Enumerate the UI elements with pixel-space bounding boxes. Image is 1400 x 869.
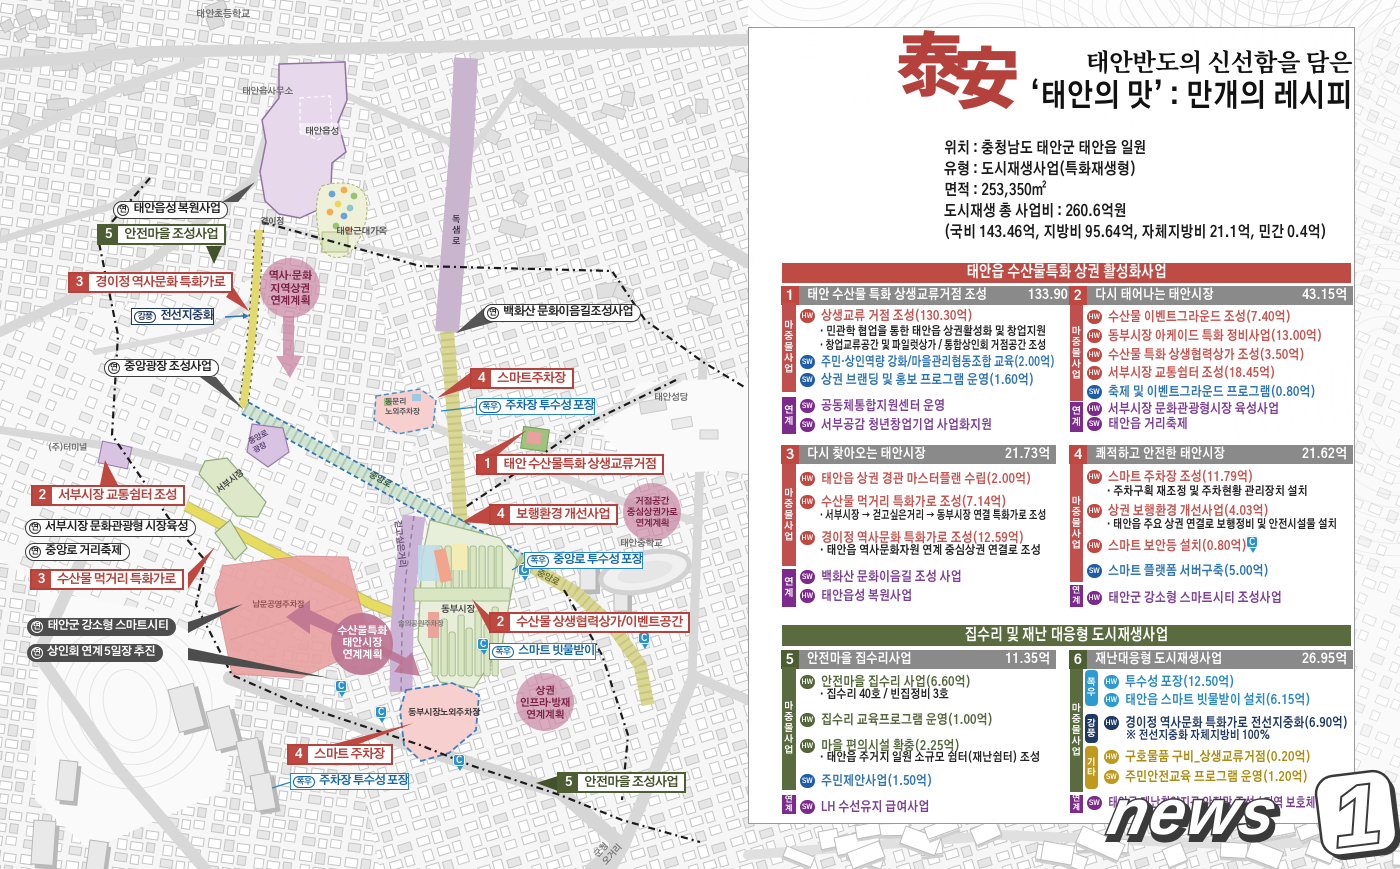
svg-text:인프라·방재: 인프라·방재 bbox=[520, 697, 570, 709]
svg-text:연계계획: 연계계획 bbox=[270, 295, 310, 307]
svg-text:news: news bbox=[1102, 776, 1285, 848]
svg-text:중심상권가로: 중심상권가로 bbox=[627, 507, 678, 517]
svg-text:연계계획: 연계계획 bbox=[526, 709, 564, 721]
svg-text:태안시장: 태안시장 bbox=[342, 637, 382, 649]
svg-text:수산물특화: 수산물특화 bbox=[337, 625, 388, 637]
svg-text:상권: 상권 bbox=[536, 685, 555, 697]
svg-text:거점공간: 거점공간 bbox=[635, 496, 669, 506]
svg-text:연계계획: 연계계획 bbox=[635, 518, 669, 528]
svg-text:연계계획: 연계계획 bbox=[342, 649, 382, 661]
